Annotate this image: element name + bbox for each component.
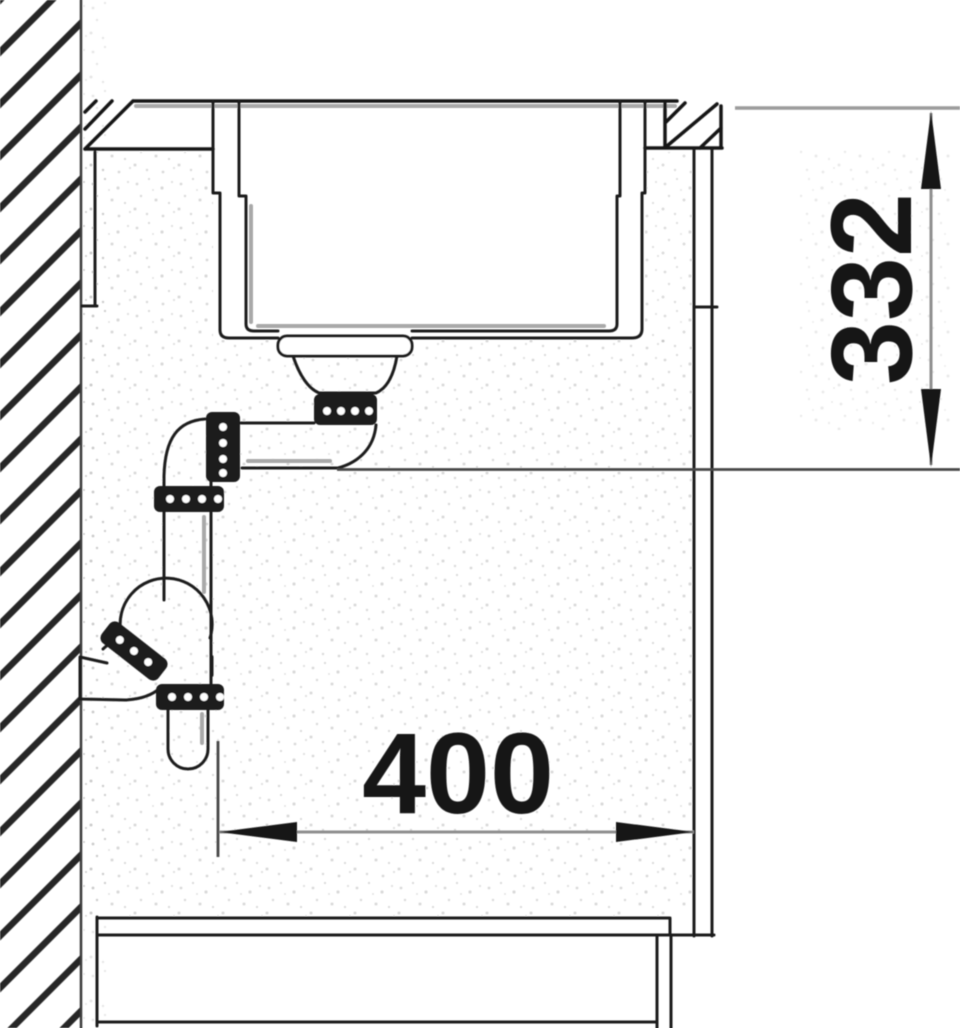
wall-hatch [0, 0, 82, 1028]
cabinet-bottom-shelf [97, 918, 714, 935]
strainer-flange [278, 336, 412, 356]
countertop-right-section [645, 103, 722, 148]
bowl-inner-shadow [251, 206, 604, 326]
bowl-outer-wall [213, 101, 645, 338]
wall [0, 0, 82, 1028]
cabinet-plinth [657, 935, 671, 1028]
dim-width-label: 400 [362, 710, 554, 838]
dim-height-label: 332 [808, 193, 936, 385]
bowl-inner-wall [239, 101, 620, 331]
drawing-canvas: 332 400 [0, 0, 960, 1028]
countertop [85, 101, 722, 149]
countertop-left-section [85, 101, 677, 149]
sink-section-drawing: 332 400 [0, 0, 960, 1028]
cabinet-front-panel [694, 150, 717, 936]
sink-bowl [213, 101, 645, 338]
